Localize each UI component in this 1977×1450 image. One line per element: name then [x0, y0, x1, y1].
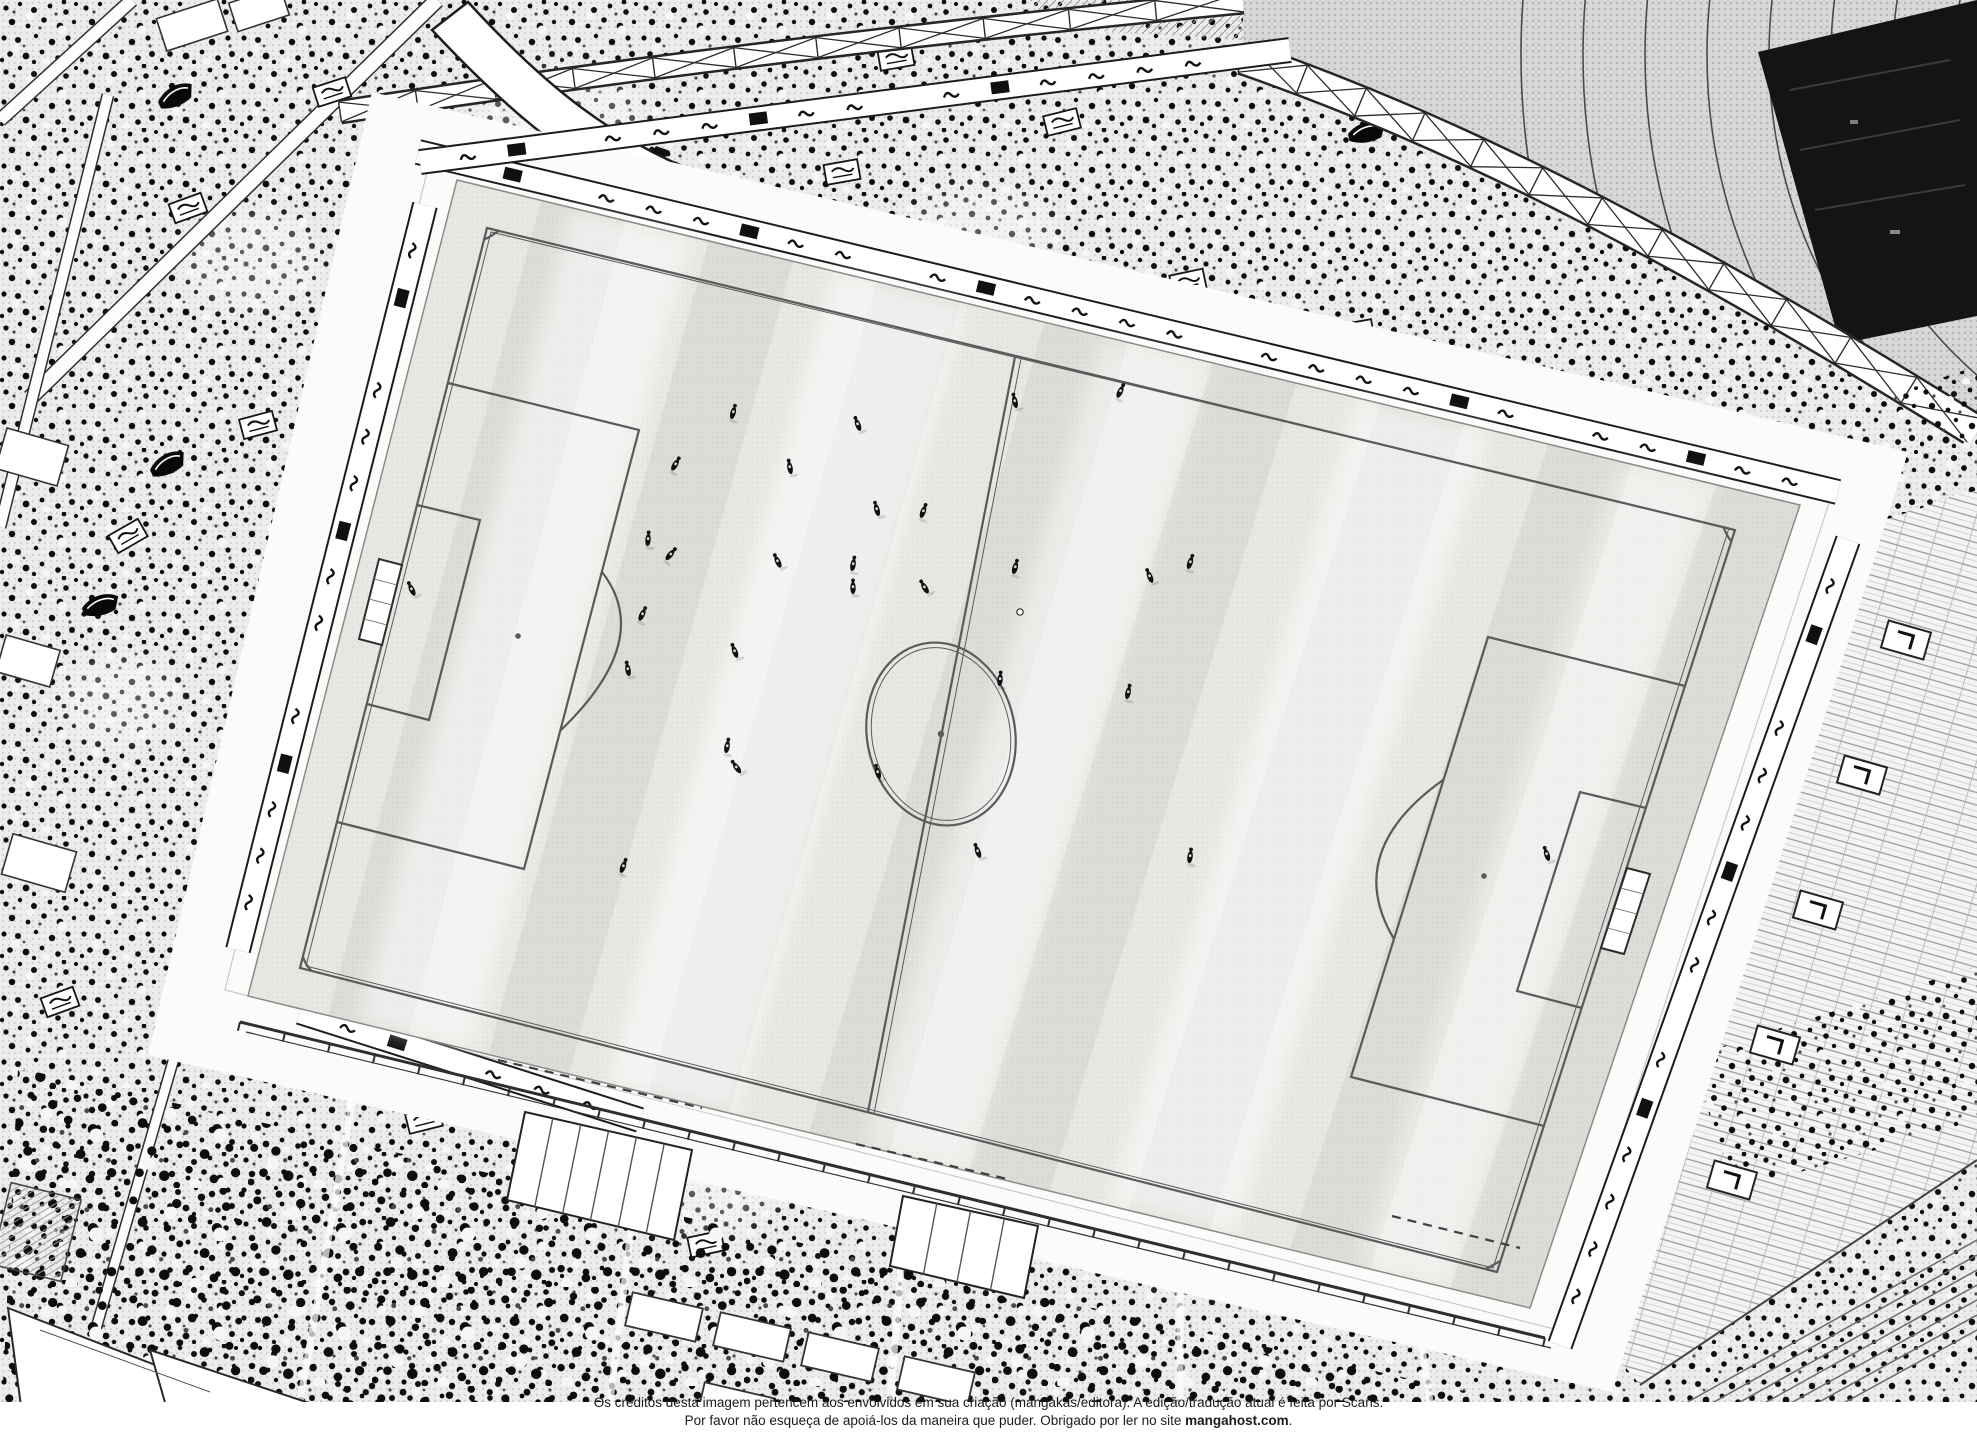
credits-line-2: Por favor não esqueça de apoiá-los da ma… [0, 1412, 1977, 1430]
ad-board-logo [507, 142, 526, 156]
ad-board-logo [990, 80, 1009, 94]
credits-block: Os créditos desta imagem pertencem aos e… [0, 1394, 1977, 1430]
crowd-light-patch [60, 655, 180, 745]
artwork [0, 0, 1977, 1450]
center-spot [938, 731, 944, 737]
site-name: mangahost.com [1185, 1413, 1289, 1428]
left-penalty-spot [515, 633, 521, 639]
match-ball [1017, 609, 1023, 615]
right-penalty-spot [1481, 873, 1487, 879]
ad-board-logo [749, 111, 768, 125]
manga-page: Os créditos desta imagem pertencem aos e… [0, 0, 1977, 1450]
credits-line-1: Os créditos desta imagem pertencem aos e… [0, 1394, 1977, 1412]
